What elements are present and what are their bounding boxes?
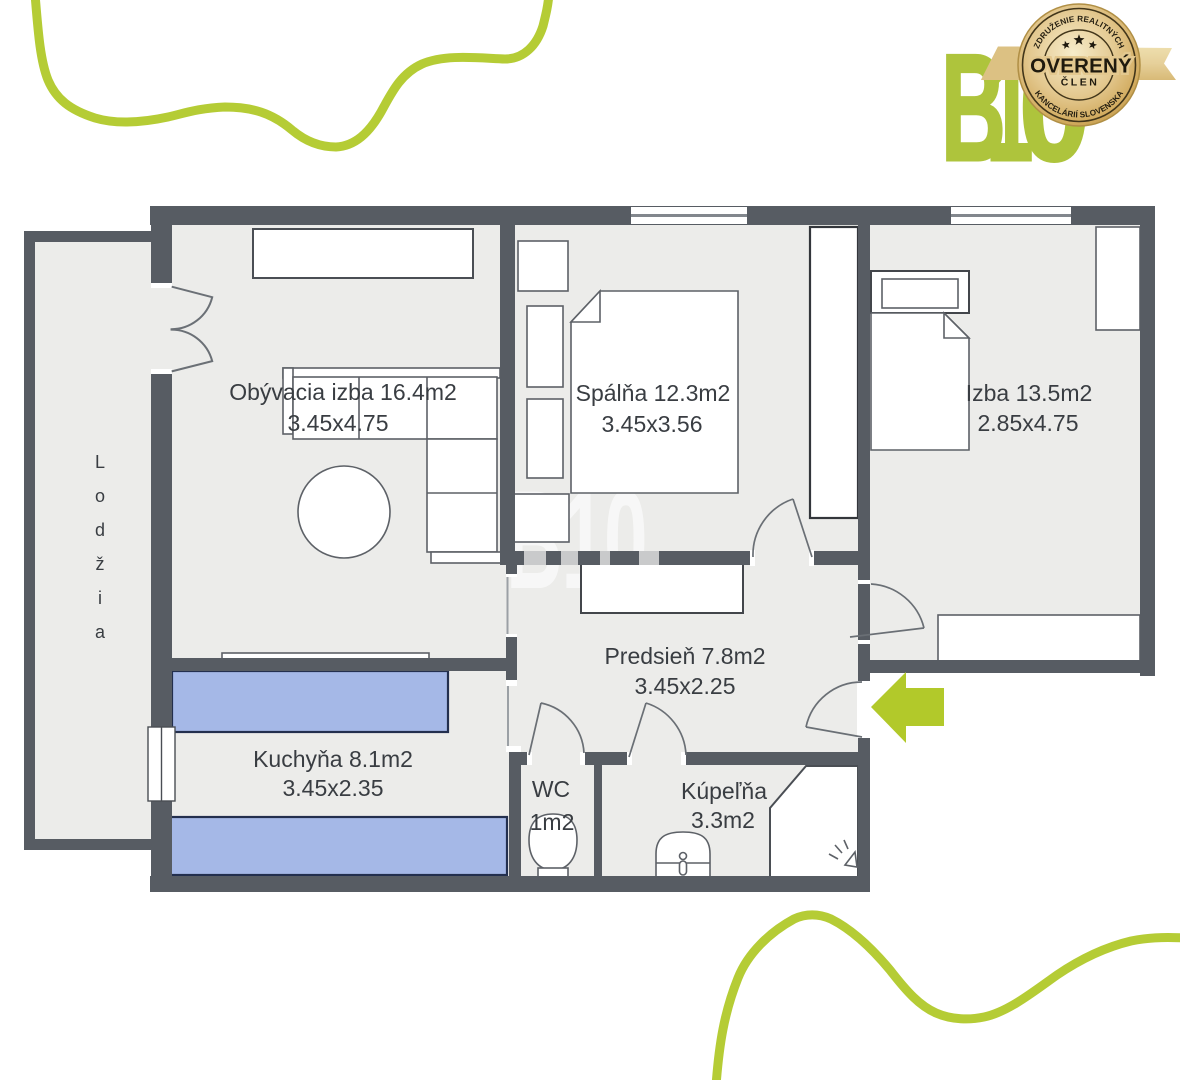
svg-text:WC: WC	[532, 776, 570, 802]
svg-text:3.45x4.75: 3.45x4.75	[287, 410, 388, 436]
svg-text:Izba 13.5m2: Izba 13.5m2	[966, 380, 1093, 406]
svg-text:1m2: 1m2	[530, 809, 575, 835]
svg-text:Obývacia izba 16.4m2: Obývacia izba 16.4m2	[229, 379, 457, 405]
svg-text:Predsieň 7.8m2: Predsieň 7.8m2	[604, 643, 765, 669]
svg-text:OVERENÝ: OVERENÝ	[1030, 54, 1132, 78]
svg-text:3.45x2.25: 3.45x2.25	[634, 673, 735, 699]
svg-text:Kuchyňa 8.1m2: Kuchyňa 8.1m2	[253, 746, 413, 772]
svg-text:3.3m2: 3.3m2	[691, 807, 755, 833]
svg-text:3.45x2.35: 3.45x2.35	[282, 775, 383, 801]
svg-text:o: o	[95, 486, 105, 506]
svg-text:i: i	[98, 588, 102, 608]
svg-text:L: L	[95, 452, 105, 472]
svg-text:Spálňa 12.3m2: Spálňa 12.3m2	[576, 380, 731, 406]
svg-text:a: a	[95, 622, 106, 642]
svg-text:ž: ž	[96, 554, 105, 574]
svg-text:3.45x3.56: 3.45x3.56	[601, 411, 702, 437]
svg-text:2.85x4.75: 2.85x4.75	[977, 410, 1078, 436]
svg-text:Kúpeľňa: Kúpeľňa	[681, 778, 767, 804]
svg-text:d: d	[95, 520, 105, 540]
svg-text:ČLEN: ČLEN	[1061, 76, 1100, 89]
